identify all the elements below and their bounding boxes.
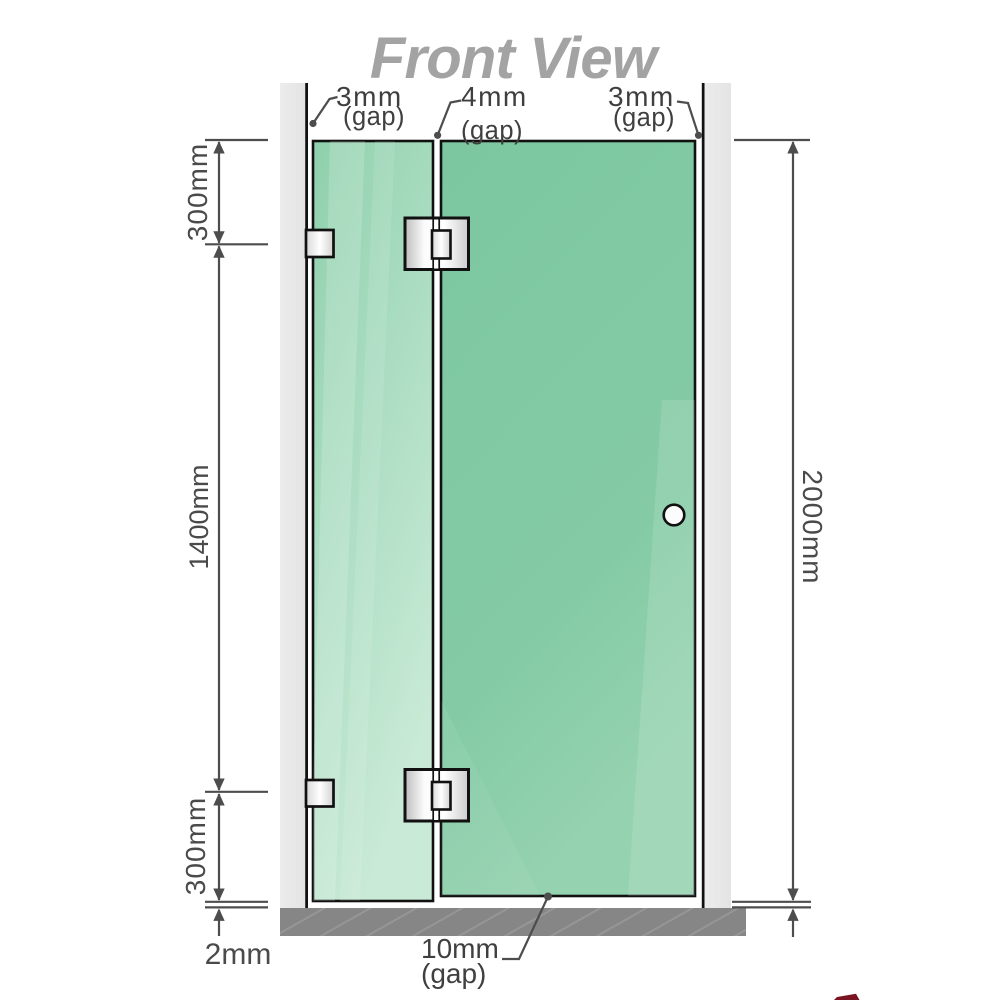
svg-text:(gap): (gap) (343, 103, 405, 131)
svg-text:2mm: 2mm (205, 938, 272, 971)
svg-text:300mm: 300mm (180, 797, 211, 895)
svg-text:(gap): (gap) (461, 117, 523, 145)
svg-text:(gap): (gap) (613, 104, 675, 132)
svg-text:2000mm: 2000mm (797, 470, 828, 585)
svg-text:1400mm: 1400mm (184, 464, 214, 569)
svg-text:(gap): (gap) (421, 958, 486, 989)
svg-text:4mm: 4mm (461, 81, 528, 112)
svg-text:300mm: 300mm (182, 143, 213, 241)
